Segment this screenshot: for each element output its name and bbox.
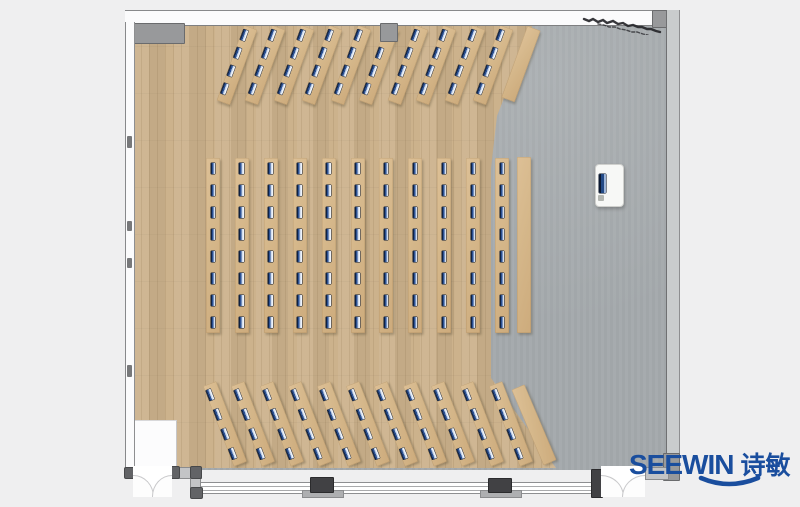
sketch-mark <box>580 13 666 35</box>
monitor <box>398 64 406 76</box>
monitor <box>211 207 216 218</box>
monitor <box>211 251 216 262</box>
monitor <box>471 207 476 218</box>
monitor <box>234 389 242 401</box>
monitor <box>325 29 333 41</box>
monitor <box>326 251 331 262</box>
monitor <box>448 82 456 94</box>
monitor <box>500 185 505 196</box>
monitor <box>297 207 302 218</box>
monitor <box>463 389 471 401</box>
monitor <box>341 64 349 76</box>
monitor <box>384 251 389 262</box>
monitor <box>377 389 385 401</box>
monitor <box>342 448 350 460</box>
podium-screen <box>599 174 606 193</box>
monitor <box>211 273 216 284</box>
monitor <box>442 207 447 218</box>
door-leaf <box>152 475 173 497</box>
desk <box>379 158 393 333</box>
monitor <box>413 273 418 284</box>
monitor <box>471 163 476 174</box>
monitor <box>355 185 360 196</box>
monitor <box>413 317 418 328</box>
monitor <box>392 428 400 440</box>
wall-segment <box>127 221 132 231</box>
monitor <box>442 185 447 196</box>
desk <box>408 158 422 333</box>
monitor <box>442 317 447 328</box>
monitor <box>471 185 476 196</box>
monitor <box>268 229 273 240</box>
desk <box>206 158 220 333</box>
monitor <box>239 229 244 240</box>
monitor <box>290 47 298 59</box>
monitor <box>268 207 273 218</box>
monitor <box>312 64 320 76</box>
monitor <box>262 47 270 59</box>
monitor <box>326 207 331 218</box>
monitor <box>500 229 505 240</box>
monitor <box>239 251 244 262</box>
monitor <box>297 29 305 41</box>
logo-swoosh-icon <box>698 475 762 489</box>
desk <box>235 158 249 333</box>
monitor <box>439 29 447 41</box>
monitor <box>268 273 273 284</box>
monitor <box>297 163 302 174</box>
monitor <box>354 29 362 41</box>
wall-segment <box>127 365 132 377</box>
floor-plan-canvas: SEEWIN诗敏 <box>0 0 800 507</box>
monitor <box>496 29 504 41</box>
monitor <box>471 273 476 284</box>
monitor <box>413 295 418 306</box>
monitor <box>239 207 244 218</box>
monitor <box>355 163 360 174</box>
monitor <box>391 82 399 94</box>
monitor <box>297 317 302 328</box>
monitor <box>239 185 244 196</box>
door-leaf <box>601 475 624 497</box>
wall-block-mid <box>380 23 398 42</box>
door-leaf <box>133 475 154 497</box>
desk <box>322 158 336 333</box>
monitor <box>326 185 331 196</box>
monitor <box>384 317 389 328</box>
monitor <box>334 82 342 94</box>
monitor <box>355 273 360 284</box>
monitor <box>299 409 307 421</box>
desk <box>495 158 509 333</box>
monitor <box>320 389 328 401</box>
monitor <box>384 207 389 218</box>
monitor <box>477 82 485 94</box>
monitor <box>490 47 498 59</box>
monitor <box>500 273 505 284</box>
monitor <box>457 448 465 460</box>
monitor <box>442 163 447 174</box>
monitor <box>376 47 384 59</box>
monitor <box>239 273 244 284</box>
monitor <box>268 29 276 41</box>
monitor <box>442 229 447 240</box>
monitor <box>239 163 244 174</box>
monitor <box>268 251 273 262</box>
monitor <box>413 163 418 174</box>
monitor <box>211 317 216 328</box>
entry-alcove <box>133 420 177 469</box>
monitor <box>442 409 450 421</box>
monitor <box>268 317 273 328</box>
monitor <box>500 295 505 306</box>
wall-right <box>666 10 680 470</box>
monitor <box>449 428 457 440</box>
monitor <box>297 295 302 306</box>
wall-segment <box>127 258 132 268</box>
monitor <box>442 251 447 262</box>
monitor <box>326 317 331 328</box>
monitor <box>420 82 428 94</box>
monitor <box>291 389 299 401</box>
monitor <box>413 185 418 196</box>
monitor <box>211 163 216 174</box>
monitor <box>355 251 360 262</box>
wall-left <box>125 22 135 470</box>
monitor <box>470 409 478 421</box>
monitor <box>233 47 241 59</box>
monitor <box>314 448 322 460</box>
podium <box>595 164 624 207</box>
wall-cap <box>190 487 203 499</box>
monitor <box>500 251 505 262</box>
monitor <box>500 207 505 218</box>
monitor <box>471 229 476 240</box>
monitor <box>404 47 412 59</box>
monitor <box>363 82 371 94</box>
monitor <box>500 317 505 328</box>
monitor <box>384 185 389 196</box>
monitor <box>355 207 360 218</box>
desk <box>437 158 451 333</box>
monitor <box>327 409 335 421</box>
monitor <box>478 428 486 440</box>
monitor <box>369 64 377 76</box>
monitor <box>335 428 343 440</box>
monitor <box>384 295 389 306</box>
monitor <box>297 251 302 262</box>
monitor <box>211 229 216 240</box>
monitor <box>240 29 248 41</box>
desk <box>293 158 307 333</box>
monitor <box>257 448 265 460</box>
monitor <box>249 82 257 94</box>
monitor <box>306 428 314 440</box>
wall-segment <box>127 136 132 148</box>
monitor <box>355 229 360 240</box>
monitor <box>326 295 331 306</box>
monitor <box>268 295 273 306</box>
monitor <box>242 409 250 421</box>
monitor <box>483 64 491 76</box>
monitor <box>384 163 389 174</box>
monitor <box>297 229 302 240</box>
wall-cap <box>190 466 202 479</box>
monitor <box>220 82 228 94</box>
monitor <box>355 295 360 306</box>
monitor <box>468 29 476 41</box>
monitor <box>433 47 441 59</box>
monitor <box>355 317 360 328</box>
desk <box>351 158 365 333</box>
monitor <box>384 229 389 240</box>
monitor <box>306 82 314 94</box>
monitor <box>211 295 216 306</box>
monitor <box>347 47 355 59</box>
monitor <box>411 29 419 41</box>
monitor <box>249 428 257 440</box>
monitor <box>426 64 434 76</box>
double-door-left <box>133 466 172 497</box>
monitor <box>239 317 244 328</box>
monitor <box>326 163 331 174</box>
monitor <box>268 185 273 196</box>
podium-tray <box>598 195 604 201</box>
monitor <box>385 409 393 421</box>
monitor <box>413 251 418 262</box>
monitor <box>485 448 493 460</box>
monitor <box>239 295 244 306</box>
monitor <box>384 273 389 284</box>
desk <box>466 158 480 333</box>
monitor <box>442 273 447 284</box>
monitor <box>277 82 285 94</box>
desk <box>264 158 278 333</box>
monitor <box>227 64 235 76</box>
seewin-logo: SEEWIN诗敏 <box>629 446 799 498</box>
monitor <box>319 47 327 59</box>
monitor <box>268 163 273 174</box>
structural-column <box>488 478 512 493</box>
monitor <box>442 295 447 306</box>
monitor <box>455 64 463 76</box>
monitor <box>284 64 292 76</box>
monitor <box>326 229 331 240</box>
monitor <box>255 64 263 76</box>
monitor <box>211 185 216 196</box>
structural-column <box>310 477 334 493</box>
side-table <box>517 157 531 333</box>
monitor <box>461 47 469 59</box>
monitor <box>326 273 331 284</box>
monitor <box>413 207 418 218</box>
monitor <box>471 317 476 328</box>
monitor <box>434 389 442 401</box>
monitor <box>297 273 302 284</box>
window-wall <box>199 482 592 494</box>
monitor <box>500 163 505 174</box>
monitor <box>471 295 476 306</box>
monitor <box>413 229 418 240</box>
monitor <box>400 448 408 460</box>
monitor <box>471 251 476 262</box>
monitor <box>297 185 302 196</box>
